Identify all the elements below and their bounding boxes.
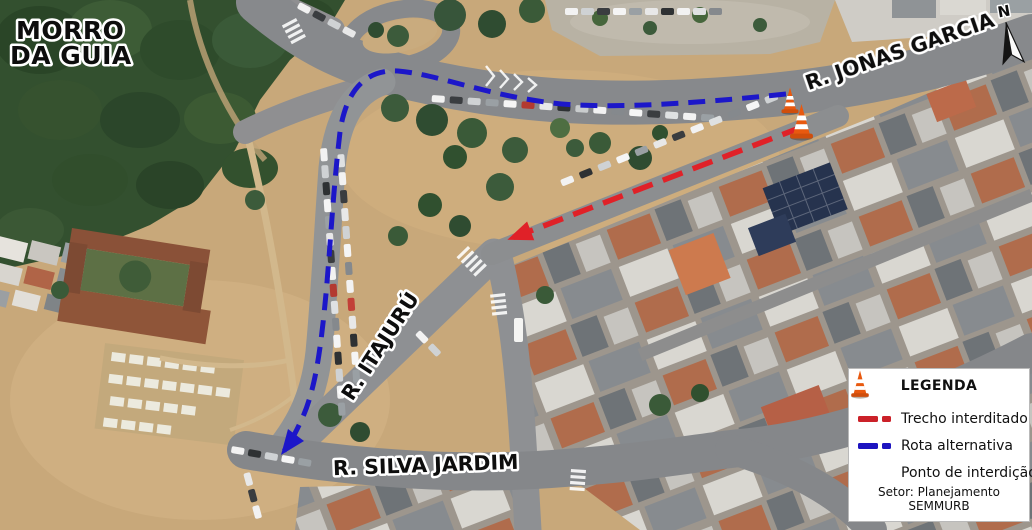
area-label-line2: DA GUIA <box>10 41 132 70</box>
legend-title: LEGENDA <box>849 378 1029 394</box>
legend-item-closure-point: Ponto de interdição <box>849 459 1029 486</box>
legend-box: LEGENDA Trecho interditado Rota alternat… <box>848 368 1030 522</box>
legend-item-label: Ponto de interdição <box>901 465 1032 481</box>
legend-item-label: Trecho interditado <box>901 411 1028 427</box>
legend-item-alternative-route: Rota alternativa <box>849 432 1029 459</box>
map-canvas: N MORRO DA GUIA R. JONAS GARCIA R. ITAJU… <box>0 0 1032 530</box>
legend-rows: Trecho interditado Rota alternativa Pont… <box>849 405 1029 486</box>
blue-dashed-line-icon <box>858 443 892 449</box>
red-dashed-line-icon <box>858 416 892 422</box>
legend-item-label: Rota alternativa <box>901 438 1013 454</box>
legend-footer: Setor: Planejamento SEMMURB <box>849 485 1029 513</box>
legend-item-closed-segment: Trecho interditado <box>849 405 1029 432</box>
